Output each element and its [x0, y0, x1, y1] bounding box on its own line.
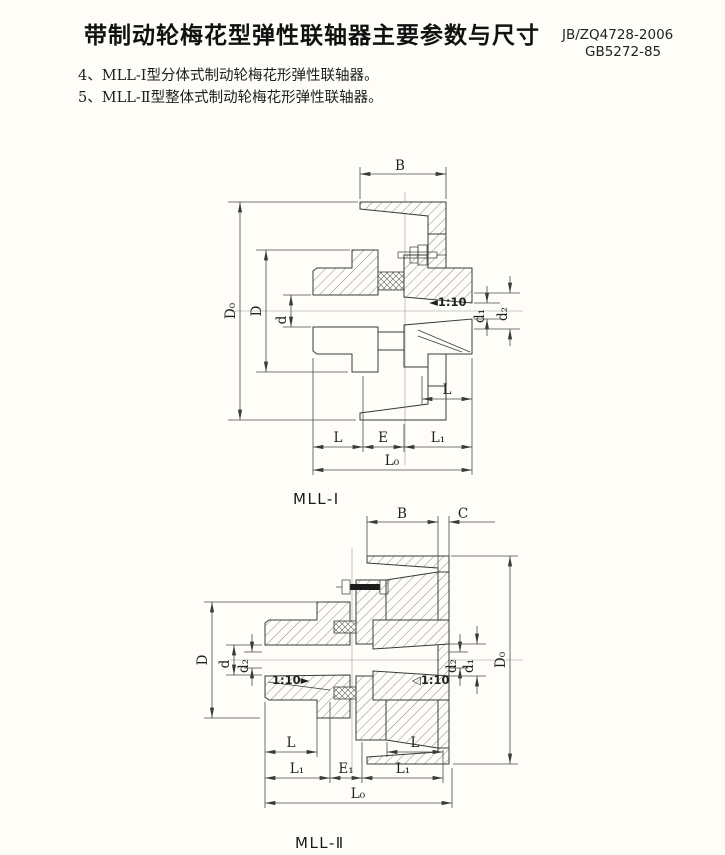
fig2-dim-C: C: [449, 506, 495, 558]
fig1-dim-d1-label: d₁: [472, 309, 488, 323]
fig2-dim-B-label: B: [397, 506, 407, 522]
fig2-taper-note-right: ◁1:10: [412, 673, 449, 687]
fig2-dim-L0-label: L₀: [351, 786, 366, 802]
fig2-dim-L1-right-label: L₁: [396, 761, 410, 777]
fig2-dim-E1-label: E₁: [338, 761, 353, 777]
fig1-dim-D0-label: D₀: [223, 302, 239, 319]
fig1-centerlines: [230, 192, 523, 465]
fig1-dim-D-label: D: [249, 305, 265, 316]
fig1-dim-bottom-row: L E L₁ L₀: [313, 358, 472, 475]
fig2-taper-note-left: 1:10►: [272, 673, 310, 687]
technical-drawings: B D₀ D d: [0, 0, 725, 855]
fig2-dim-C-label: C: [458, 506, 468, 522]
fig1-drum-rim-bottom: [360, 386, 446, 420]
fig1-dim-d-label: d: [274, 315, 290, 324]
fig1-dim-L-label: L: [334, 430, 343, 446]
fig1-drum-rim-top: [360, 202, 446, 234]
fig2-dim-d1-label: d₁: [461, 659, 477, 673]
fig1-dim-L-inner-label: L: [443, 382, 452, 398]
fig2-dim-d2-right-label: d₂: [444, 659, 460, 673]
fig1-taper-bush-lines: [418, 330, 470, 352]
fig2-drum-rim-top: [367, 556, 449, 572]
fig1-dim-L0-label: L₀: [385, 453, 400, 469]
fig2-dim-L-right-label: L: [411, 735, 420, 751]
fig2-dim-d-label: d: [217, 659, 233, 668]
fig1-dim-L1-label: L₁: [431, 430, 445, 446]
fig1-dim-d2-label: d₂: [495, 307, 511, 321]
figure-mll-1: B D₀ D d: [223, 158, 523, 475]
fig2-dim-D0-label: D₀: [493, 651, 509, 668]
fig2-dim-D-label: D: [195, 654, 211, 665]
fig2-dim-d2-left-label: d₂: [236, 659, 252, 673]
fig1-drum-web-top: [428, 234, 446, 268]
fig2-dim-L1-left-label: L₁: [290, 761, 304, 777]
figure-mll-2: B C D d: [195, 506, 523, 808]
fig1-dim-B: B: [360, 158, 446, 199]
fig1-dim-L-inner: L: [422, 376, 472, 404]
fig2-dim-L-left-label: L: [287, 735, 296, 751]
figure2-caption: MLL-Ⅱ: [295, 834, 345, 852]
fig1-dim-B-label: B: [395, 158, 405, 174]
fig1-taper-note: ◄1:10: [429, 295, 466, 309]
figure1-caption: MLL-Ⅰ: [293, 490, 340, 508]
fig1-dim-E-label: E: [378, 430, 388, 446]
